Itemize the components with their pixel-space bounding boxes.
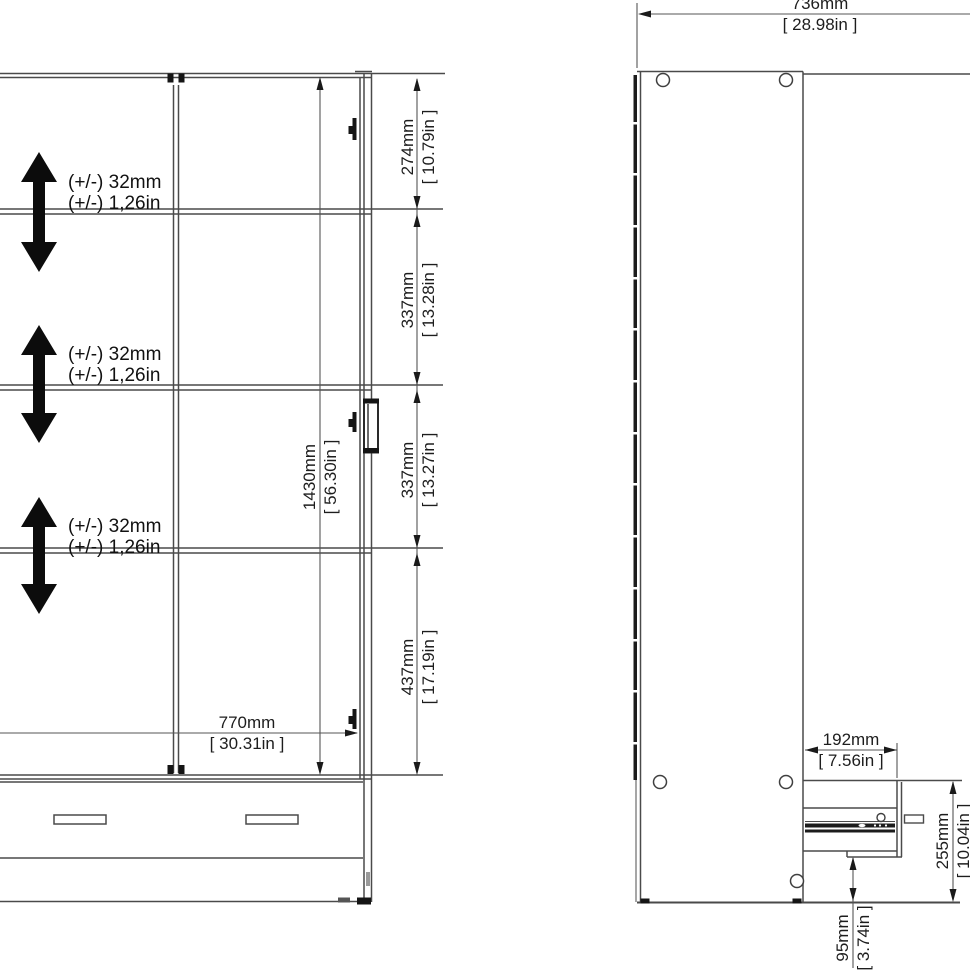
shelf-adjust-note-1: (+/-) 32mm (+/-) 1,26in [68, 172, 161, 214]
front-view-linework [0, 72, 445, 903]
adjustable-arrow-icon [21, 152, 57, 272]
drawer-slide-rail [805, 814, 895, 833]
drawer-handle-slot-left [54, 815, 106, 824]
dim-label-337mm-lower: 337mm [ 13.27in ] [397, 433, 439, 508]
shelf-adjust-note-3: (+/-) 32mm (+/-) 1,26in [68, 516, 161, 558]
panel-hole-icons [654, 74, 804, 888]
dim-label-770mm: 770mm [ 30.31in ] [210, 712, 285, 754]
drawer-rail-tab [905, 815, 924, 823]
divider-hooks [168, 74, 185, 775]
dim-label-255mm: 255mm [ 10.04in ] [932, 804, 970, 879]
dim-label-95mm: 95mm [ 3.74in ] [832, 905, 874, 970]
adjustable-arrow-icon [21, 497, 57, 614]
technical-drawing-canvas [0, 0, 970, 971]
dim-label-736mm: 736mm [ 28.98in ] [783, 0, 858, 35]
adjustable-arrow-icons [21, 152, 57, 614]
side-dimension-arrowheads [638, 11, 957, 903]
dim-label-337mm-upper: 337mm [ 13.28in ] [397, 263, 439, 338]
drawer-handle-slot-right [246, 815, 298, 824]
furniture-dimension-drawing: (+/-) 32mm (+/-) 1,26in (+/-) 32mm (+/-)… [0, 0, 970, 971]
front-feet-marks [338, 872, 371, 905]
door-handle [363, 399, 379, 454]
dim-label-192mm: 192mm [ 7.56in ] [818, 729, 883, 771]
dim-label-274mm: 274mm [ 10.79in ] [397, 110, 439, 185]
side-door-edge [632, 75, 638, 780]
side-view-linework [636, 72, 970, 903]
adjustable-arrow-icon [21, 325, 57, 443]
dim-label-1430mm: 1430mm [ 56.30in ] [299, 440, 341, 515]
shelf-adjust-note-2: (+/-) 32mm (+/-) 1,26in [68, 344, 161, 386]
dim-label-437mm: 437mm [ 17.19in ] [397, 630, 439, 705]
